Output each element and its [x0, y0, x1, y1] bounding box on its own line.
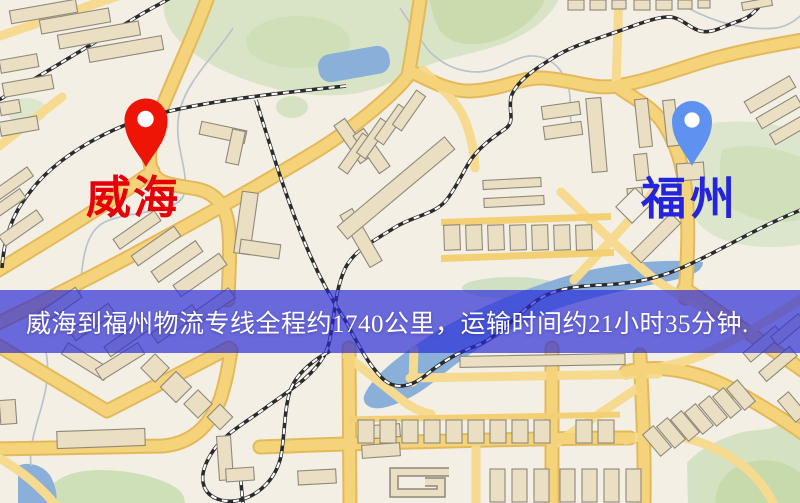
destination-city-label: 福州 — [641, 177, 739, 222]
origin-city-label: 威海 — [86, 176, 180, 221]
map-image — [0, 0, 800, 503]
route-info-text: 威海到福州物流专线全程约1740公里，运输时间约21小时35分钟. — [26, 304, 749, 340]
screenshot-root: 威海 福州 威海到福州物流专线全程约1740公里，运输时间约21小时35分钟. — [0, 0, 800, 503]
route-info-banner: 威海到福州物流专线全程约1740公里，运输时间约21小时35分钟. — [0, 290, 800, 353]
